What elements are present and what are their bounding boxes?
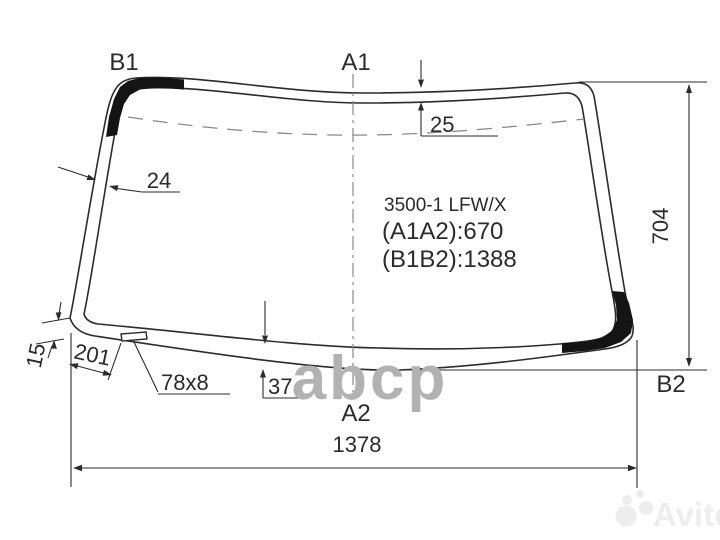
dim-corner-band-value: 15 [21,341,51,370]
dim-height-value: 704 [648,208,673,245]
shade-band-dashed-line [128,117,584,135]
dim-bottom-band-value: 37 [268,374,292,399]
corner-label-b1: B1 [109,49,138,76]
avito-logo-icon [616,490,654,527]
watermark-abcp: abcp [292,344,449,413]
diagram-svg: 25 24 704 15 201 78x8 [0,0,720,540]
dim-top-band-value: 25 [430,112,454,137]
dim-a1a2-text: (A1A2):670 [382,218,503,245]
dim-b1b2-text: (B1B2):1388 [382,246,517,273]
watermark-avito: Avito [653,496,720,533]
dim-left-band-value: 24 [147,168,171,193]
dim-slot-size-value: 78x8 [161,370,209,395]
corner-label-a1: A1 [341,49,370,76]
corner-label-b2: B2 [656,371,685,398]
mirror-slot [121,332,147,341]
dim-width-value: 1378 [333,432,382,457]
part-number: 3500-1 LFW/X [384,195,507,216]
windshield-diagram: 25 24 704 15 201 78x8 [0,0,720,540]
outline-inner [84,88,616,349]
